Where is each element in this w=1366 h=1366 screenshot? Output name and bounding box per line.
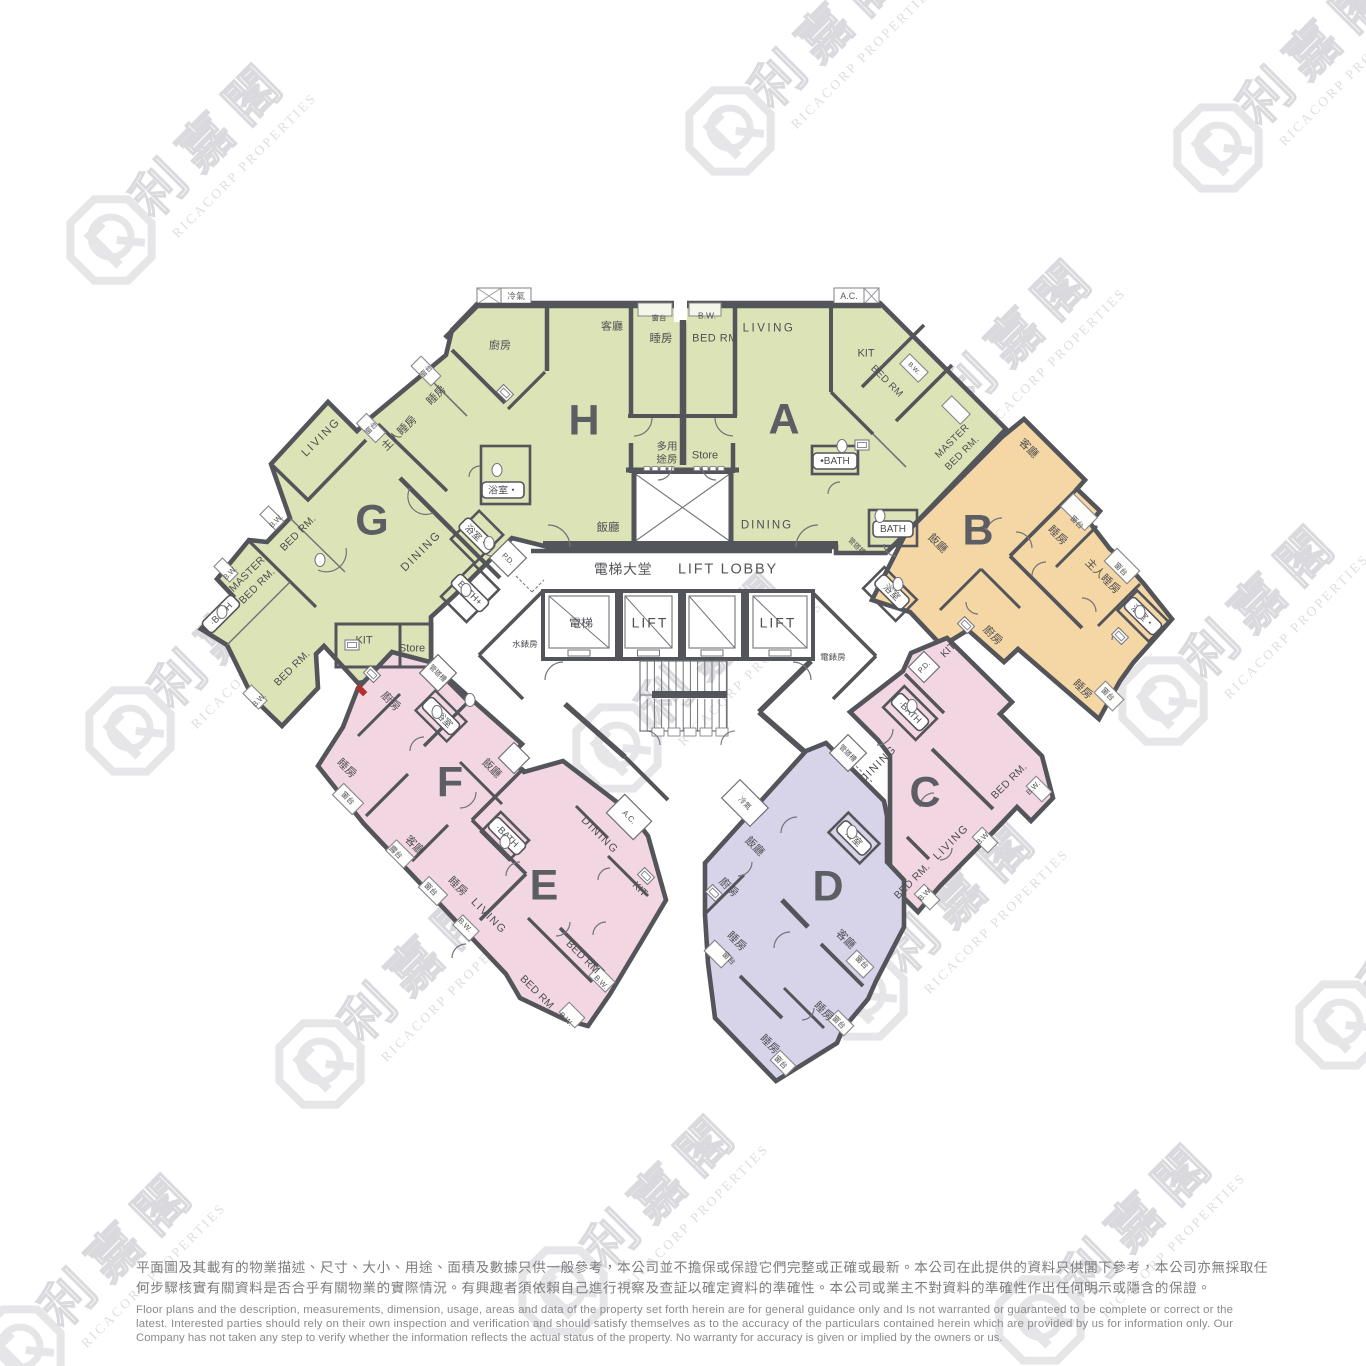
svg-text:A.C.: A.C. — [840, 291, 858, 301]
svg-text:LIFT: LIFT — [760, 614, 797, 630]
svg-text:LIFT: LIFT — [632, 614, 669, 630]
svg-text:LIVING: LIVING — [743, 323, 796, 335]
svg-text:G: G — [355, 497, 388, 545]
svg-text:•BATH: •BATH — [820, 456, 849, 467]
svg-text:DINING: DINING — [741, 520, 793, 532]
svg-text:Company has not taken any step: Company has not taken any step to verify… — [136, 1332, 1003, 1344]
svg-text:C: C — [909, 769, 940, 817]
svg-text:LIFT LOBBY: LIFT LOBBY — [678, 562, 778, 578]
svg-text:Store: Store — [692, 449, 718, 461]
svg-text:D: D — [812, 863, 843, 911]
svg-text:B: B — [962, 507, 993, 555]
svg-text:Floor plans and the descriptio: Floor plans and the description, measure… — [136, 1304, 1233, 1316]
svg-text:A: A — [768, 396, 799, 444]
svg-text:H: H — [568, 397, 599, 445]
svg-text:B.W.: B.W. — [698, 311, 716, 321]
svg-text:KIT: KIT — [857, 347, 874, 359]
svg-text:BATH: BATH — [880, 524, 906, 535]
svg-text:E: E — [530, 862, 559, 910]
svg-text:F: F — [437, 759, 463, 807]
svg-text:latest. Interested parties sho: latest. Interested parties should rely o… — [136, 1318, 1233, 1330]
svg-text:BED RM: BED RM — [692, 332, 738, 344]
svg-text:Store: Store — [399, 642, 425, 654]
